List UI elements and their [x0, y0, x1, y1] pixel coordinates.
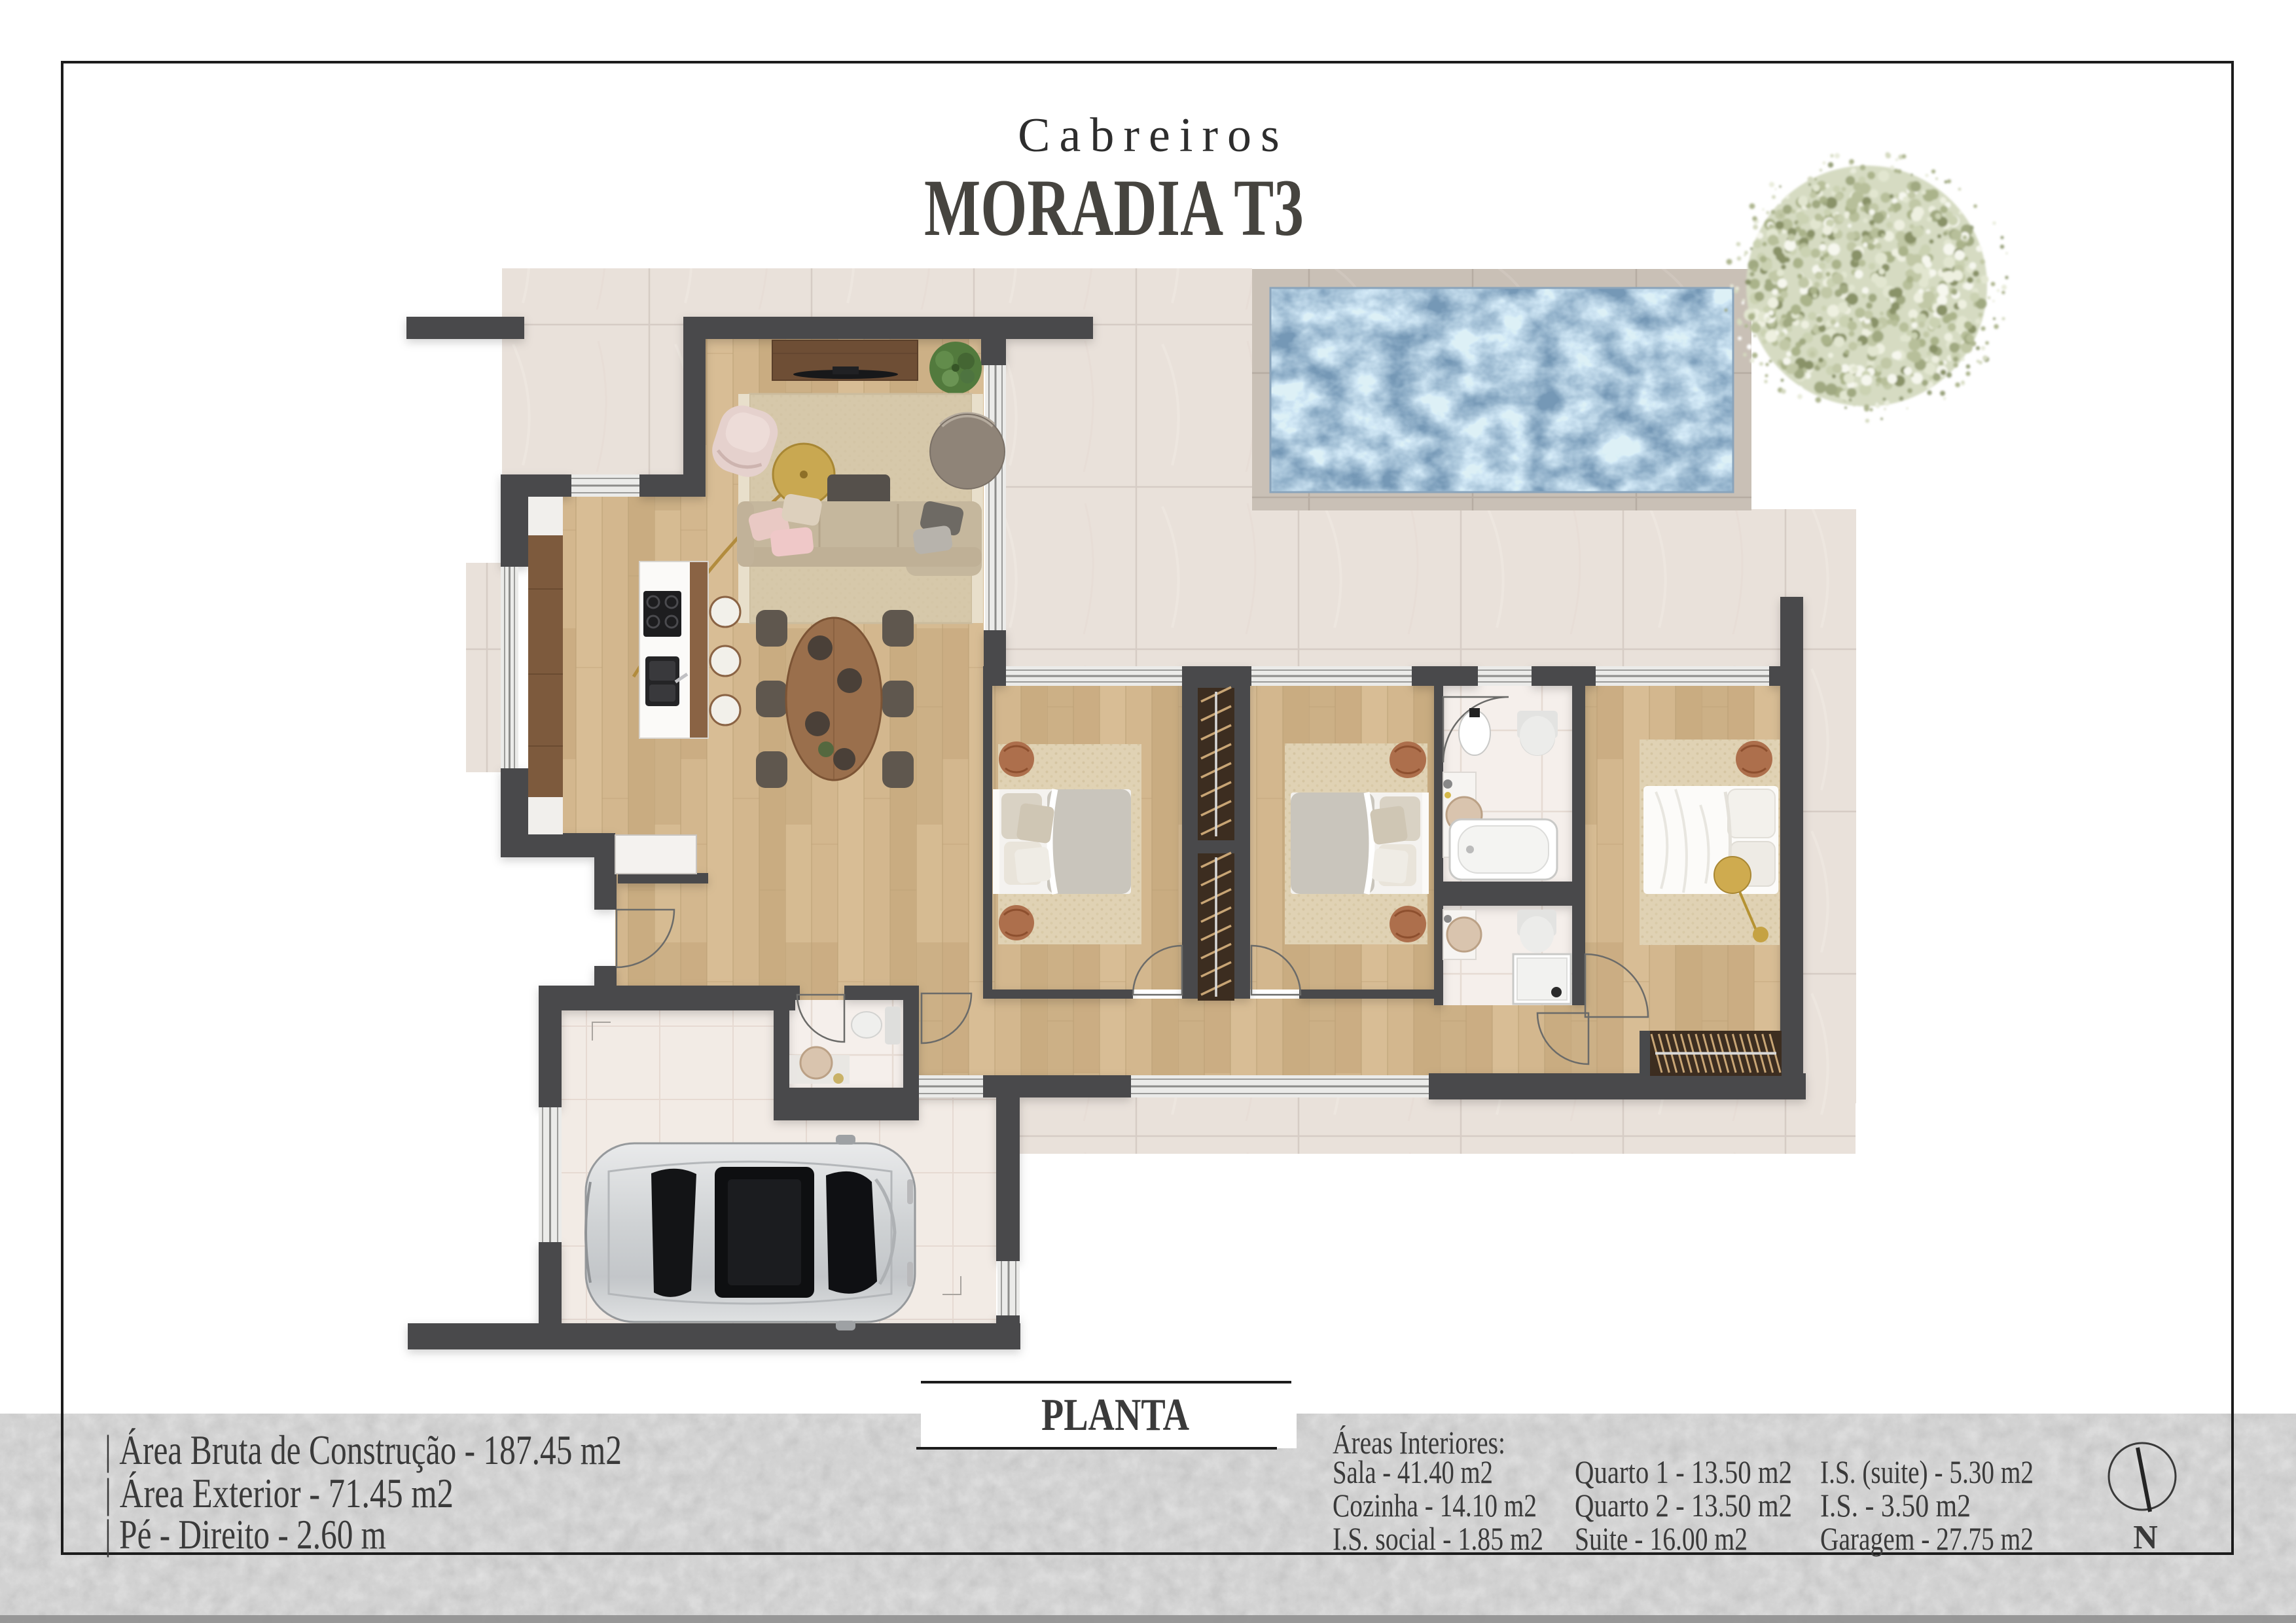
svg-text:Quarto 2 - 13.50 m2: Quarto 2 - 13.50 m2	[1575, 1487, 1792, 1524]
svg-text:I.S. (suite) - 5.30 m2: I.S. (suite) - 5.30 m2	[1820, 1454, 2034, 1490]
svg-text:N: N	[2133, 1519, 2158, 1556]
svg-text:Cabreiros: Cabreiros	[1018, 109, 1289, 162]
svg-text:| Pé - Direito - 2.60 m: | Pé - Direito - 2.60 m	[105, 1512, 386, 1558]
svg-text:Sala - 41.40 m2: Sala - 41.40 m2	[1333, 1454, 1493, 1490]
svg-text:| Área Bruta de Construção - 1: | Área Bruta de Construção - 187.45 m2	[105, 1427, 622, 1473]
svg-text:I.S. social - 1.85 m2: I.S. social - 1.85 m2	[1333, 1520, 1543, 1557]
svg-text:Garagem - 27.75 m2: Garagem - 27.75 m2	[1820, 1520, 2034, 1557]
svg-text:Cozinha - 14.10 m2: Cozinha - 14.10 m2	[1333, 1487, 1537, 1524]
svg-text:| Área Exterior - 71.45 m2: | Área Exterior - 71.45 m2	[105, 1471, 454, 1516]
svg-text:Quarto 1 - 13.50 m2: Quarto 1 - 13.50 m2	[1575, 1454, 1792, 1490]
svg-text:I.S. - 3.50 m2: I.S. - 3.50 m2	[1820, 1487, 1971, 1524]
svg-text:Suite - 16.00 m2: Suite - 16.00 m2	[1575, 1520, 1748, 1557]
svg-text:PLANTA: PLANTA	[1041, 1390, 1189, 1440]
svg-text:MORADIA T3: MORADIA T3	[924, 163, 1304, 253]
